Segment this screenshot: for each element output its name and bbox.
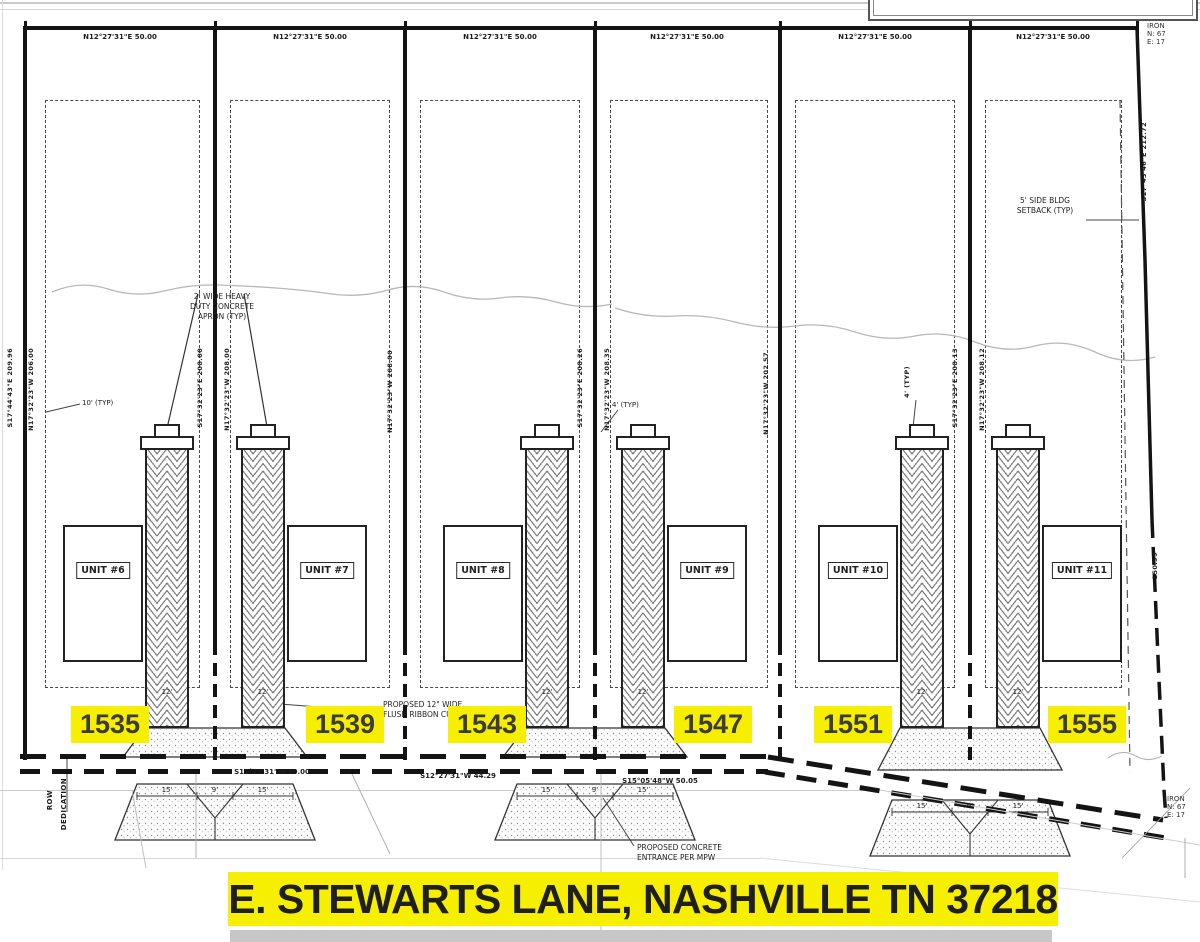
entrance-width-label: 9' (592, 786, 598, 794)
driveway-apron-step (154, 424, 180, 438)
entrance-width-label: 15' (917, 802, 928, 810)
offset-4-label: 4' (TYP) (612, 401, 639, 409)
lot-line (593, 28, 597, 642)
site-plan-sheet: E. STEWARTS LANE, NASHVILLE TN 37218 N12… (0, 0, 1200, 942)
unit-footprint (1042, 525, 1122, 662)
address-highlight: 1535 (71, 706, 149, 743)
lot-line-bearing-label: S17°32'23"E 208.00 (196, 348, 204, 427)
cropped-bottom-strip (230, 930, 1052, 942)
lot-line-bearing-label: S17°32'23"E 208.13 (951, 348, 959, 427)
hatch-segment (527, 450, 537, 726)
hatch-segment (157, 450, 167, 726)
unit-label: UNIT #8 (456, 562, 510, 579)
unit-label: UNIT #11 (1052, 562, 1112, 579)
lot-line-dashed (593, 642, 597, 768)
lot-line-bearing-label: N17°32'23"W 208.00 (223, 348, 231, 431)
lot-line-bearing-label: S17°32'23"E 208.26 (576, 348, 584, 427)
hatch-segment (547, 450, 557, 726)
driveway-apron-step (250, 424, 276, 438)
iron-pin-line: N: 67 (1147, 30, 1166, 38)
hatch-segment (263, 450, 273, 726)
lot-line (213, 28, 217, 642)
driveway-apron-step (630, 424, 656, 438)
unit-label: UNIT #7 (300, 562, 354, 579)
boundary-bearing-label: N12°27'31"E 50.00 (838, 33, 912, 41)
iron-pin-line: N: 67 (1167, 803, 1186, 811)
hatch-segment (167, 450, 177, 726)
boundary-bearing-label: N12°27'31"E 50.00 (83, 33, 157, 41)
hatch-segment (643, 450, 653, 726)
driveway-apron-step (140, 436, 194, 450)
hatch-segment (253, 450, 263, 726)
driveway-apron-step (895, 436, 949, 450)
address-highlight: 1539 (306, 706, 384, 743)
street-title: E. STEWARTS LANE, NASHVILLE TN 37218 (228, 872, 1058, 926)
driveway-apron-step (534, 424, 560, 438)
hatch-segment (273, 450, 283, 726)
unit-label: UNIT #9 (680, 562, 734, 579)
driveway-apron-step (236, 436, 290, 450)
boundary-bearing-label: S12°27'31"W 44.29 (420, 772, 496, 780)
boundary-bearing-label: S15°05'48"W 50.05 (622, 777, 698, 785)
page-edge-line (2, 0, 3, 870)
drive-width-label: 12' (162, 688, 173, 696)
driveway-hatch (900, 448, 944, 728)
hatch-segment (633, 450, 643, 726)
row-line (20, 754, 770, 759)
boundary-bearing-label: N12°27'31"E 50.00 (273, 33, 347, 41)
boundary-bearing-label: N12°27'31"E 50.00 (650, 33, 724, 41)
row-line (20, 769, 768, 774)
driveway-apron-step (909, 424, 935, 438)
iron-pin-line: E: 17 (1167, 811, 1186, 819)
driveway-hatch (145, 448, 189, 728)
contour-line (1108, 752, 1162, 759)
row-line-sloped (765, 772, 1166, 838)
callout-line: 5' SIDE BLDG (1000, 196, 1090, 206)
callout-line: APRON (TYP) (167, 312, 277, 322)
callout-line: 2' WIDE HEAVY (167, 292, 277, 302)
iron-pin-line: IRON (1147, 22, 1166, 30)
drive-width-label: 12' (638, 688, 649, 696)
hatch-segment (177, 450, 187, 726)
address-highlight: 1551 (814, 706, 892, 743)
entrance-width-label: 15' (258, 786, 269, 794)
unit-footprint (443, 525, 523, 662)
driveway-apron-step (1005, 424, 1031, 438)
driveway-apron-step (616, 436, 670, 450)
driveway-apron-step (520, 436, 574, 450)
iron-pin-line: E: 17 (1147, 38, 1166, 46)
callout-line: PROPOSED CONCRETE (637, 843, 722, 853)
hatch-segment (932, 450, 942, 726)
hatch-segment (623, 450, 633, 726)
iron-pin-line: IRON (1167, 795, 1186, 803)
leader-line (603, 798, 634, 846)
hatch-segment (653, 450, 663, 726)
construction-line (132, 790, 146, 868)
entrance-width-label: 9' (967, 802, 973, 810)
lot-line-bearing-label: N17°32'23"W 208.35 (603, 348, 611, 431)
address-highlight: 1555 (1048, 706, 1126, 743)
entrance-width-label: 15' (542, 786, 553, 794)
construction-line (352, 774, 390, 854)
callout-line: SETBACK (TYP) (1000, 206, 1090, 216)
road-edge-line (0, 790, 880, 791)
callout-line: DUTY CONCRETE (167, 302, 277, 312)
lot-line-bearing-label: N17°32'23"W 208.00 (386, 350, 394, 433)
drive-width-label: 12' (917, 688, 928, 696)
drive-width-label: 12' (542, 688, 553, 696)
address-highlight: 1547 (674, 706, 752, 743)
lot-line-bearing-label: 150.99 (1151, 552, 1159, 579)
address-highlight: 1543 (448, 706, 526, 743)
hatch-segment (1018, 450, 1028, 726)
title-block-box (868, 0, 1198, 21)
lot-line (968, 28, 972, 642)
unit-footprint (63, 525, 143, 662)
driveway-hatch (525, 448, 569, 728)
east-boundary-line (1137, 28, 1152, 520)
hatch-segment (922, 450, 932, 726)
unit-label: UNIT #6 (76, 562, 130, 579)
entrance-width-label: 15' (162, 786, 173, 794)
hatch-segment (1028, 450, 1038, 726)
unit-footprint (818, 525, 898, 662)
driveway-hatch (241, 448, 285, 728)
lot-line (403, 28, 407, 642)
callout-line: ENTRANCE PER MPW (637, 853, 722, 863)
lot-line (778, 28, 782, 642)
apron-callout: 2' WIDE HEAVYDUTY CONCRETEAPRON (TYP) (167, 292, 277, 321)
row-dedication-label: ROW (46, 790, 54, 810)
driveway-apron-step (991, 436, 1045, 450)
iron-pin-marker: IRONN: 67E: 17 (1147, 22, 1166, 46)
lot-line-bearing-label: N17°32'23"W 202.57 (762, 352, 770, 435)
driveway-hatch (621, 448, 665, 728)
entrance-width-label: 15' (638, 786, 649, 794)
hatch-segment (998, 450, 1008, 726)
unit-footprint (667, 525, 747, 662)
offset-10-label: 10' (TYP) (82, 399, 113, 407)
lot-line-bearing-label: N17°32'23"W 206.00 (27, 348, 35, 431)
lot-line-bearing-label: N17°32'23"W 208.12 (978, 348, 986, 431)
hatch-segment (557, 450, 567, 726)
entrance-width-label: 9' (212, 786, 218, 794)
hatch-segment (1008, 450, 1018, 726)
entrance-callout: PROPOSED CONCRETEENTRANCE PER MPW (637, 843, 722, 863)
lot-corner-tick (1136, 21, 1139, 34)
driveway-hatch (996, 448, 1040, 728)
lot-line-dashed (213, 642, 217, 768)
lot-line-bearing-label: S17°43'46"E 212.72 (1140, 122, 1148, 201)
boundary-bearing-label: N12°27'31"E 50.00 (463, 33, 537, 41)
unit-label: UNIT #10 (828, 562, 888, 579)
hatch-segment (147, 450, 157, 726)
hatch-segment (912, 450, 922, 726)
lot-line-bearing-label: 4' (TYP) (903, 366, 911, 398)
drive-width-label: 12' (258, 688, 269, 696)
boundary-bearing-label: N12°27'31"E 50.00 (1016, 33, 1090, 41)
lot-line-bearing-label: S17°44'43"E 209.96 (6, 348, 14, 427)
road-edge-line (880, 790, 1200, 845)
iron-pin-marker: IRONN: 67E: 17 (1167, 795, 1186, 819)
side-setback-callout: 5' SIDE BLDGSETBACK (TYP) (1000, 196, 1090, 216)
hatch-segment (243, 450, 253, 726)
hatch-segment (902, 450, 912, 726)
row-dedication-label: DEDICATION (60, 778, 68, 830)
street-title-text: E. STEWARTS LANE, NASHVILLE TN 37218 (228, 876, 1058, 923)
drive-width-label: 12' (1013, 688, 1024, 696)
boundary-bearing-label: S12°27'31"W 50.00 (234, 768, 310, 776)
lot-line-dashed (778, 642, 782, 768)
lot-line-dashed (968, 642, 972, 768)
hatch-segment (537, 450, 547, 726)
entrance-width-label: 15' (1013, 802, 1024, 810)
unit-footprint (287, 525, 367, 662)
row-line-sloped (768, 757, 1163, 820)
title-block-box-inner (873, 0, 1193, 16)
